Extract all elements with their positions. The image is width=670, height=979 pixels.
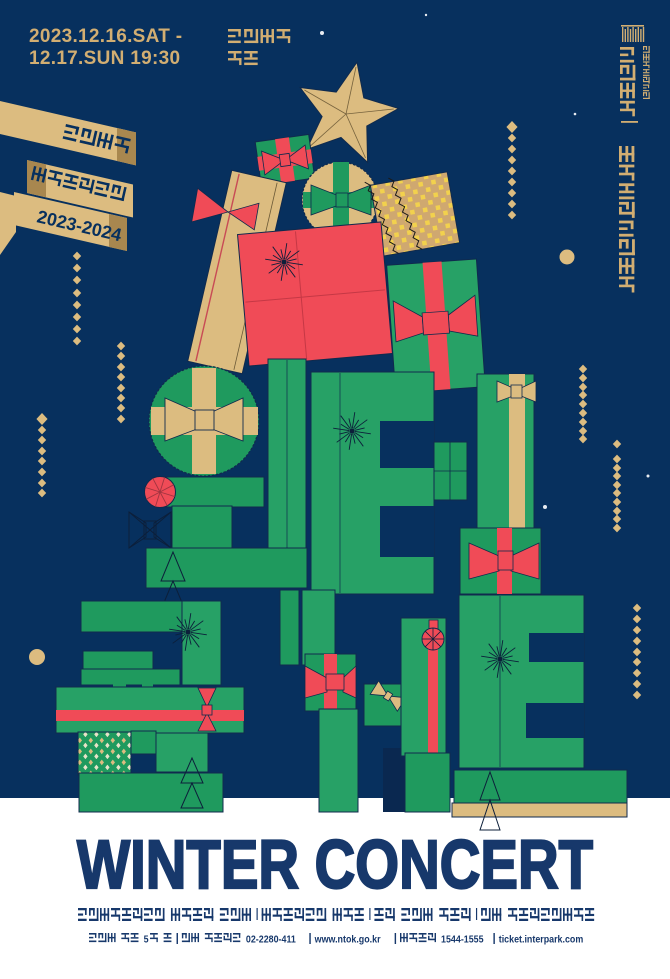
svg-text:02-2280-411: 02-2280-411 (246, 934, 296, 946)
svg-text:ticket.interpark.com: ticket.interpark.com (499, 934, 584, 946)
svg-text:2023.12.16.SAT -: 2023.12.16.SAT - (29, 26, 182, 47)
svg-text:1544-1555: 1544-1555 (441, 934, 484, 946)
svg-text:WINTER CONCERT: WINTER CONCERT (77, 826, 593, 903)
svg-text:12.17.SUN 19:30: 12.17.SUN 19:30 (29, 48, 180, 69)
svg-text:www.ntok.go.kr: www.ntok.go.kr (314, 934, 381, 946)
svg-text:5: 5 (144, 934, 149, 946)
